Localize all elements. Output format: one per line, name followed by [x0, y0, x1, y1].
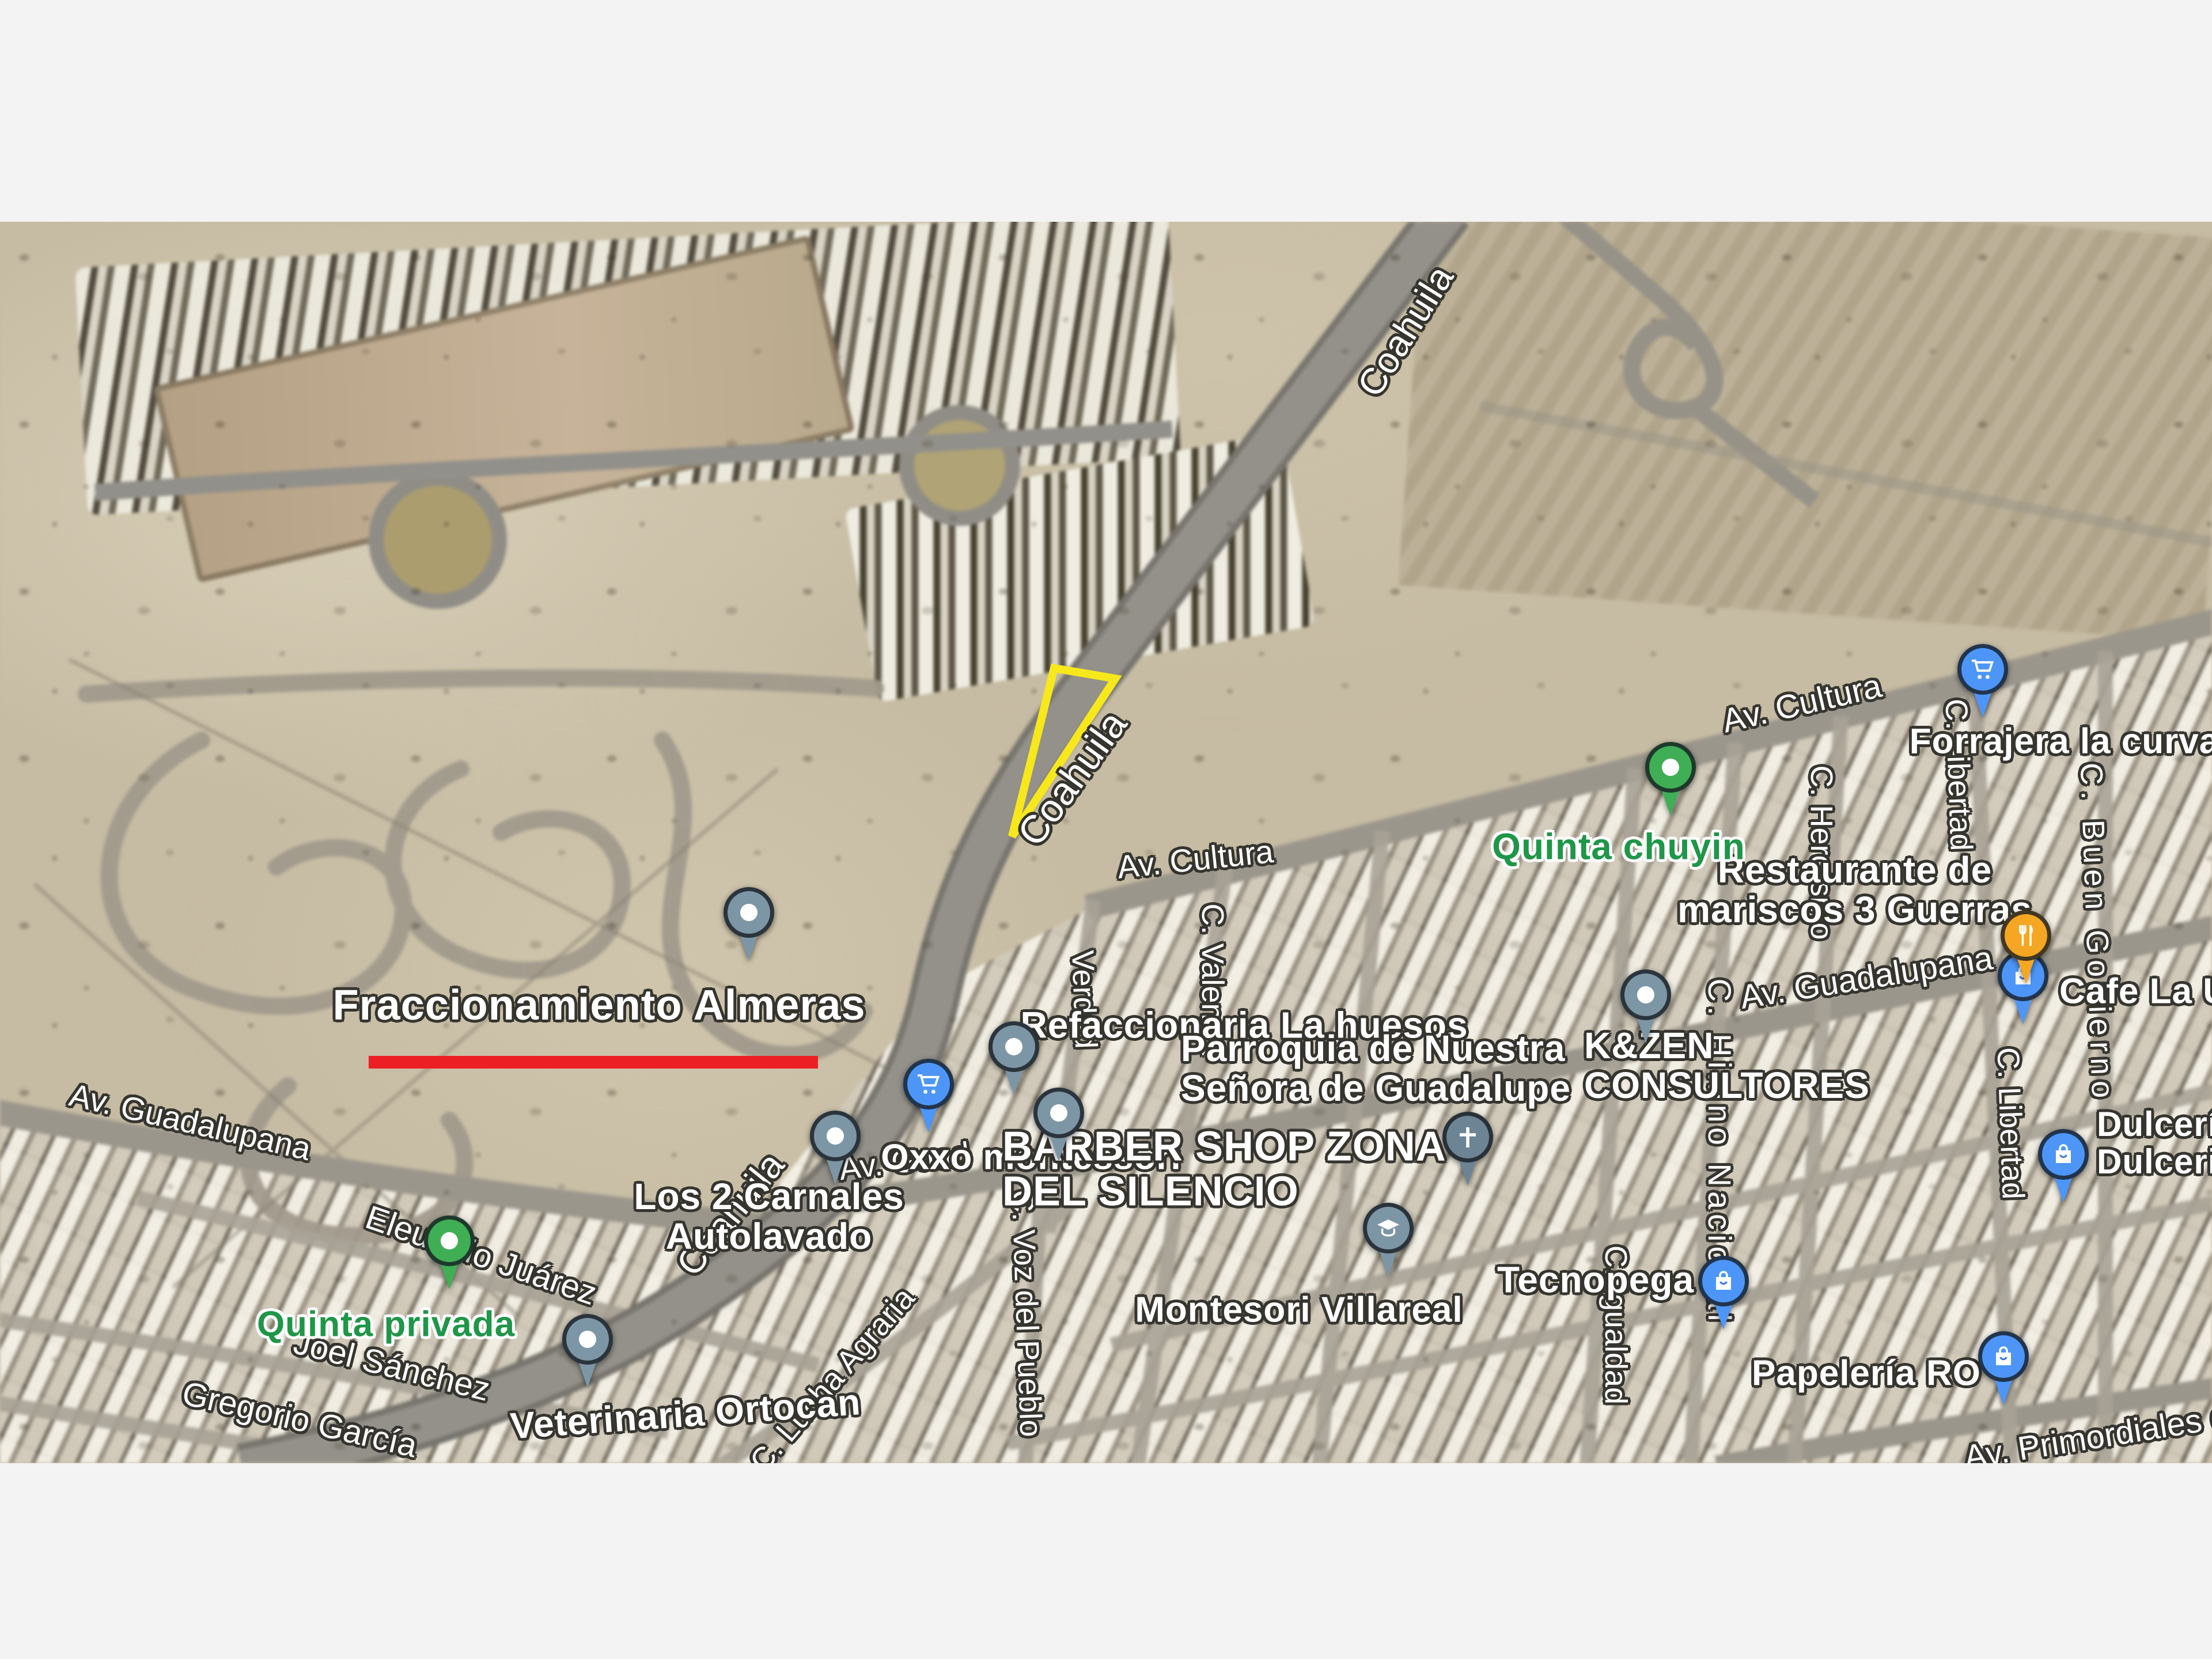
place-label-parroquia-guadalupe[interactable]: Parroquia de NuestraSeñora de Guadalupe [1181, 1029, 1571, 1108]
map-pin-quinta-chuyin[interactable] [1644, 742, 1697, 818]
place-label-los-2-carnales-autolavado[interactable]: Los 2 CarnalesAutolavado [634, 1177, 904, 1256]
cap-icon [1363, 1203, 1414, 1253]
map-pin-barber-shop[interactable] [1032, 1088, 1085, 1164]
cross-icon [1442, 1112, 1493, 1162]
dot-icon [988, 1021, 1039, 1072]
map-pin-tecnopega[interactable] [1697, 1256, 1750, 1332]
place-label-dulceria[interactable]: DulceríaDulceria [2097, 1106, 2212, 1181]
street-label-c-libertad-bottom: C. Libertad [1991, 1047, 2029, 1200]
map-pin-los-2-carnales[interactable] [809, 1111, 862, 1187]
place-label-quinta-chuyin[interactable]: Quinta chuyin [1492, 827, 1745, 866]
bag-icon [2038, 1129, 2089, 1180]
cart-icon [1957, 644, 2008, 695]
place-label-tecnopega[interactable]: Tecnopega [1497, 1260, 1694, 1300]
map-pin-papeleria[interactable] [1977, 1331, 2030, 1407]
bag-icon [1698, 1256, 1749, 1306]
vegetation-speckles [0, 222, 2212, 1463]
dot-icon [1645, 742, 1696, 793]
place-label-fraccionamiento-almeras[interactable]: Fraccionamiento Almeras [332, 982, 865, 1028]
place-label-forrajera-la-curva[interactable]: Forrajera la curva [1910, 723, 2212, 762]
dot-icon [424, 1215, 475, 1266]
red-underline-annotation [369, 1056, 818, 1069]
cart-icon [903, 1059, 954, 1109]
dot-icon [562, 1314, 613, 1365]
dot-icon [1033, 1088, 1084, 1138]
map-pin-montesori[interactable] [1362, 1203, 1415, 1279]
map-pin-parroquia[interactable] [1441, 1112, 1494, 1188]
restaurant-icon [2001, 910, 2051, 961]
bag-icon [1978, 1331, 2029, 1382]
map-pin-oxxo[interactable] [902, 1059, 955, 1135]
map-pin-forrajera[interactable] [1956, 644, 2009, 720]
map-pin-kzen[interactable] [1619, 969, 1672, 1046]
satellite-map[interactable]: CoahuilaCoahuilaCoahuilaAv. CulturaAv. C… [0, 222, 2212, 1463]
dot-icon [724, 887, 774, 938]
place-label-cafe-la-u[interactable]: Cafe La U [2059, 973, 2212, 1012]
place-label-montesori-villareal[interactable]: Montesori Villareal [1135, 1291, 1463, 1330]
place-label-papeleria-ro[interactable]: Papelería RO [1752, 1355, 1981, 1393]
dot-icon [810, 1111, 861, 1161]
screenshot-root: CoahuilaCoahuilaCoahuilaAv. CulturaAv. C… [0, 0, 2212, 1659]
map-pin-refaccionaria[interactable] [987, 1021, 1040, 1097]
map-pin-quinta-privada[interactable] [423, 1215, 476, 1291]
map-pin-fraccionamiento-almeras[interactable] [722, 887, 775, 963]
dot-icon [1620, 969, 1671, 1020]
map-pin-veterinaria[interactable] [561, 1314, 614, 1390]
place-label-quinta-privada[interactable]: Quinta privada [257, 1306, 515, 1344]
terrain-layer [0, 222, 2212, 1463]
map-pin-dulceria[interactable] [2037, 1129, 2090, 1205]
map-pin-restaurante[interactable] [1999, 910, 2052, 986]
